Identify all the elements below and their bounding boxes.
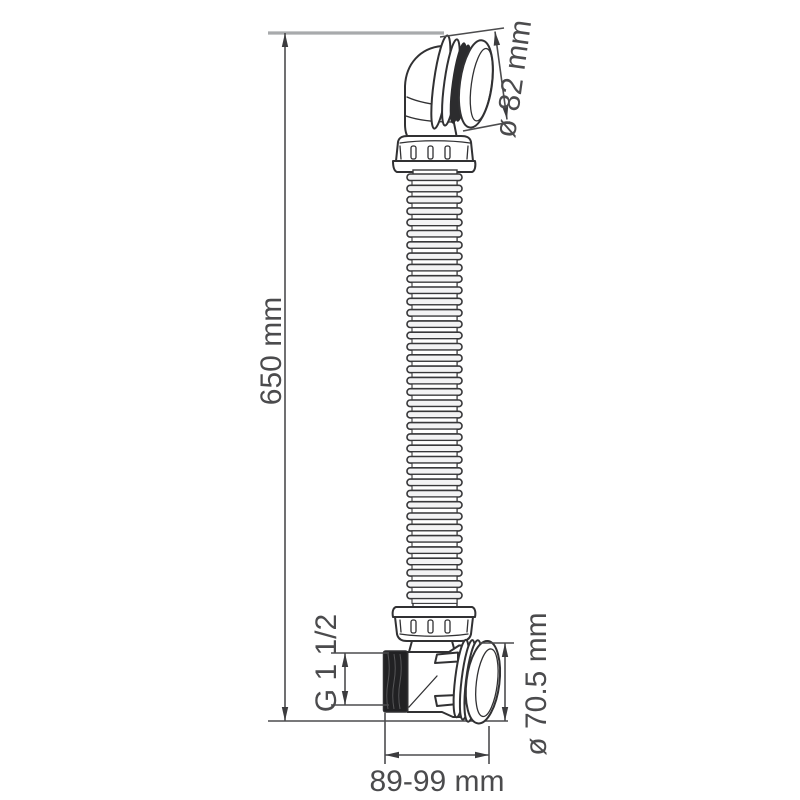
male-thread: [384, 651, 408, 712]
thread-size-label: G 1 1/2: [310, 614, 343, 712]
flexible-corrugated-hose: [407, 170, 462, 608]
union-nut-bottom: [393, 607, 476, 641]
dimension-overall-height: 650 mm: [255, 33, 288, 721]
arrow-up-icon: [282, 33, 288, 47]
dimension-thread-size: G 1 1/2: [310, 614, 389, 712]
cover-diameter-label: ø 70.5 mm: [520, 612, 553, 755]
arrow-down-icon: [502, 707, 508, 721]
cover-tab-top: [435, 653, 458, 664]
overall-height-label: 650 mm: [255, 297, 288, 405]
drain-part-drawing: [384, 35, 505, 726]
dimension-horizontal-span: 89-99 mm: [369, 713, 504, 798]
arrow-right-icon: [475, 752, 489, 758]
drain-neck: [409, 641, 455, 652]
technical-drawing-canvas: 650 mm ø 82 mm G 1 1/2 ø 70.5 mm 89-99 m…: [0, 0, 800, 800]
arrow-down-icon: [282, 707, 288, 721]
arrow-up-icon: [502, 643, 508, 657]
flexible-hose-ribs: [407, 174, 462, 603]
union-nut-top: [393, 136, 475, 172]
arrow-left-icon: [385, 752, 399, 758]
horizontal-span-label: 89-99 mm: [369, 765, 504, 798]
